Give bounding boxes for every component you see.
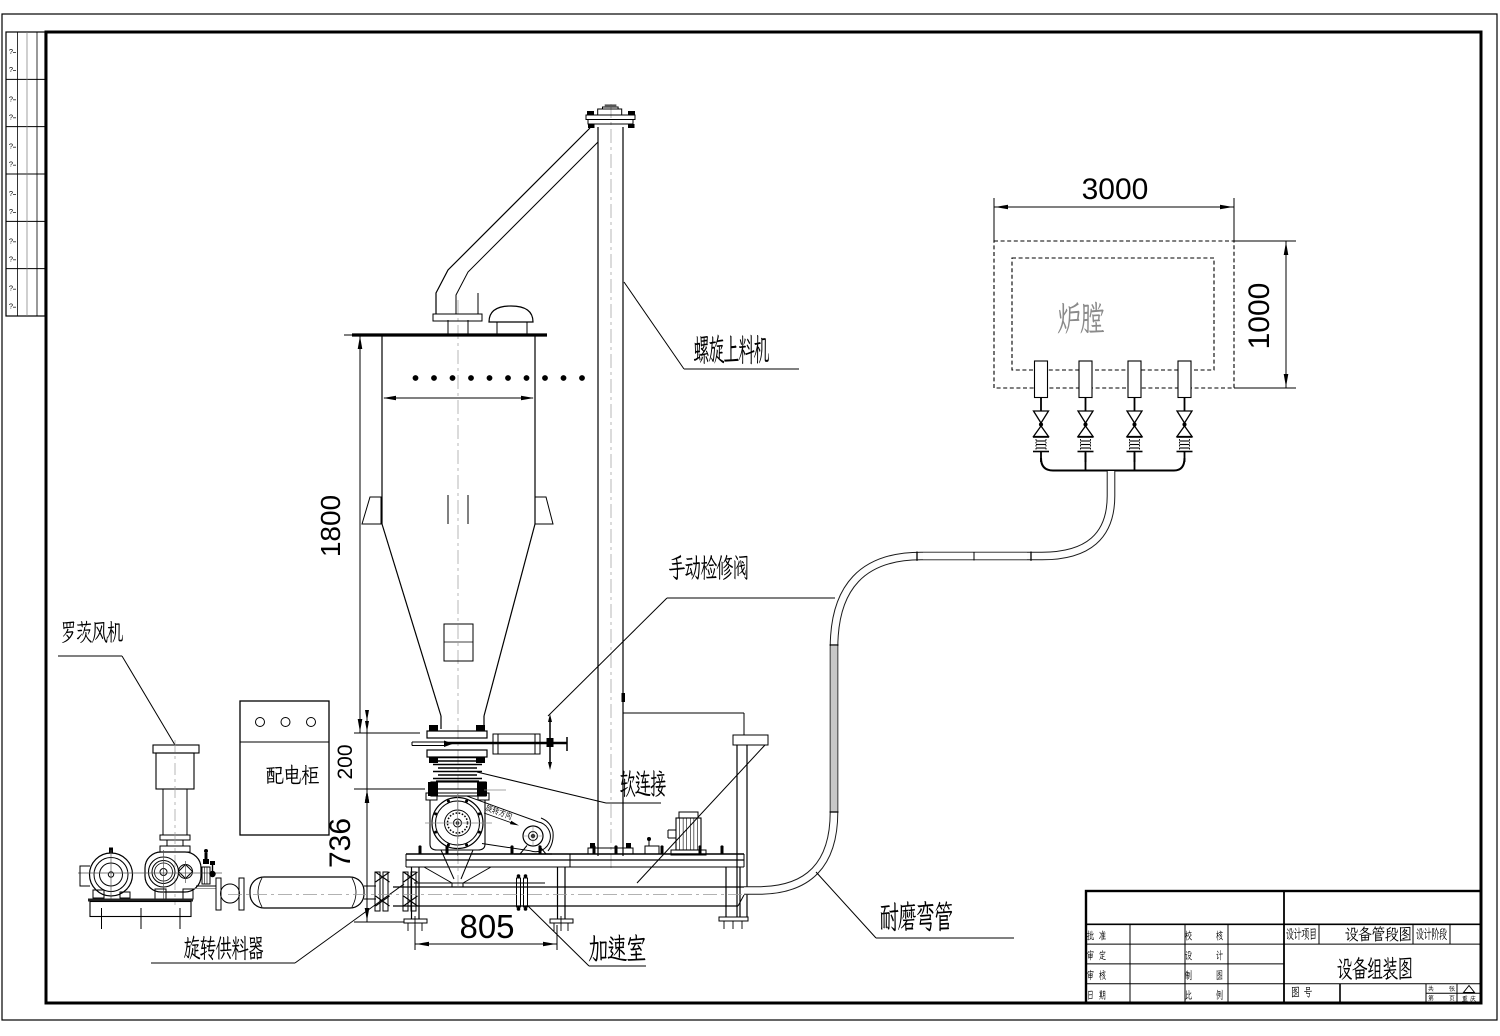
svg-text:?: ?: [9, 284, 13, 293]
svg-text:805: 805: [459, 908, 514, 945]
svg-text:?: ?: [9, 65, 13, 74]
svg-text:?: ?: [9, 236, 13, 245]
svg-text:?: ?: [9, 112, 13, 121]
svg-text:?: ?: [9, 94, 13, 103]
svg-text:1000: 1000: [1243, 283, 1276, 350]
svg-text:?: ?: [9, 160, 13, 169]
svg-text:200: 200: [334, 744, 357, 779]
svg-text:?: ?: [9, 254, 13, 263]
svg-text:?: ?: [9, 142, 13, 151]
svg-text:?: ?: [9, 302, 13, 311]
svg-text:?: ?: [9, 47, 13, 56]
svg-text:?: ?: [9, 189, 13, 198]
svg-text:?: ?: [9, 207, 13, 216]
svg-text:3000: 3000: [1082, 173, 1149, 206]
svg-text:1800: 1800: [315, 495, 346, 557]
